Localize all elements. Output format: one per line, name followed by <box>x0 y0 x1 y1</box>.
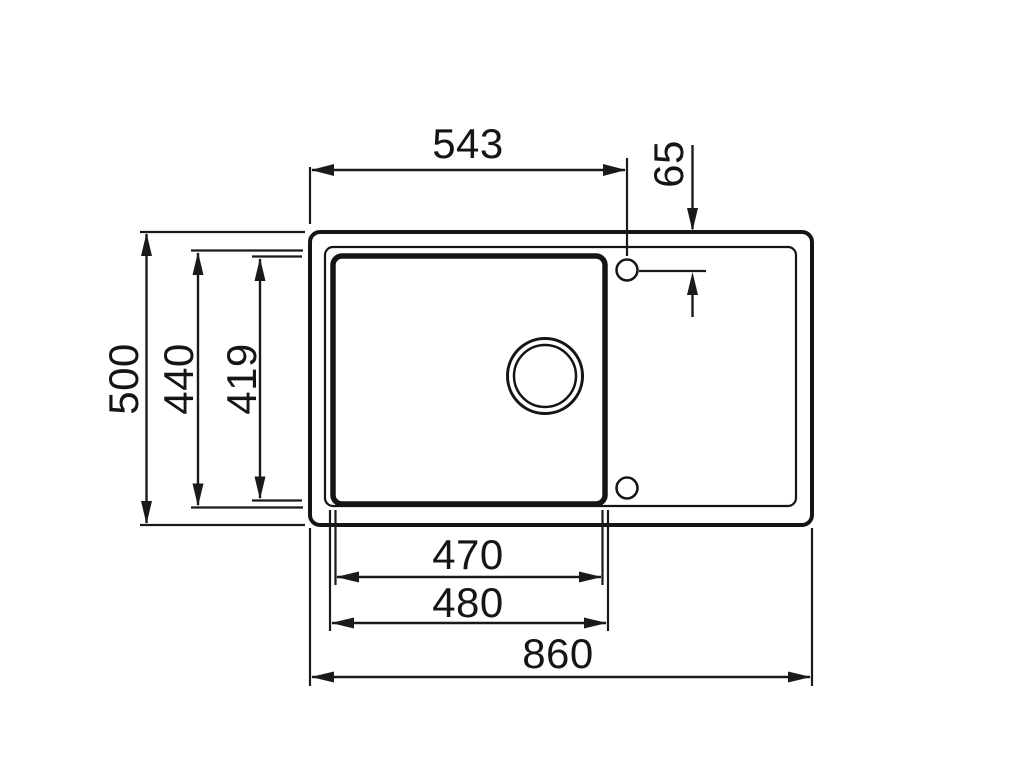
arrowhead-down-icon <box>193 484 204 507</box>
dimension-label-440: 440 <box>155 343 202 415</box>
sink-body <box>310 232 812 525</box>
dimension-label-543: 543 <box>432 120 504 167</box>
dimension-label-470: 470 <box>432 531 504 578</box>
arrowhead-right-icon <box>788 672 811 683</box>
bowl-outline <box>333 256 605 504</box>
arrowhead-up-icon <box>141 233 152 256</box>
tap-hole-bottom <box>617 478 638 499</box>
dimension-label-419: 419 <box>218 343 265 415</box>
arrowhead-left-icon <box>331 618 354 629</box>
arrowhead-right-icon <box>603 164 626 176</box>
sink-outer-edge <box>310 232 812 525</box>
dimension-470: 470 <box>336 510 603 585</box>
arrowhead-down-icon <box>687 208 698 231</box>
dimension-65: 65 <box>639 140 706 317</box>
dimension-543: 543 <box>310 120 627 256</box>
dimension-label-500: 500 <box>100 343 147 415</box>
arrowhead-up-icon <box>255 258 266 281</box>
dimension-500: 500 <box>100 232 305 525</box>
arrowhead-left-icon <box>336 572 359 583</box>
dimension-label-480: 480 <box>432 579 504 626</box>
arrowhead-down-icon <box>255 477 266 500</box>
arrowhead-left-icon <box>311 672 334 683</box>
arrowhead-down-icon <box>141 501 152 524</box>
dimension-419: 419 <box>218 257 302 501</box>
dimension-label-860: 860 <box>522 630 594 677</box>
arrowhead-left-icon <box>311 164 334 176</box>
technical-drawing-canvas: 543 65 500 440 419 <box>0 0 1024 768</box>
dimension-label-65: 65 <box>645 140 692 188</box>
arrowhead-right-icon <box>584 618 607 629</box>
sink-rim-inner-edge <box>325 247 796 506</box>
arrowhead-right-icon <box>579 572 602 583</box>
drain-hole-inner-circle <box>514 345 576 407</box>
drain-hole-outer-circle <box>508 339 583 414</box>
sink-dimension-drawing: 543 65 500 440 419 <box>0 0 1024 768</box>
arrowhead-up-icon <box>193 252 204 275</box>
tap-hole-top <box>617 260 638 281</box>
dimension-860: 860 <box>310 528 812 686</box>
